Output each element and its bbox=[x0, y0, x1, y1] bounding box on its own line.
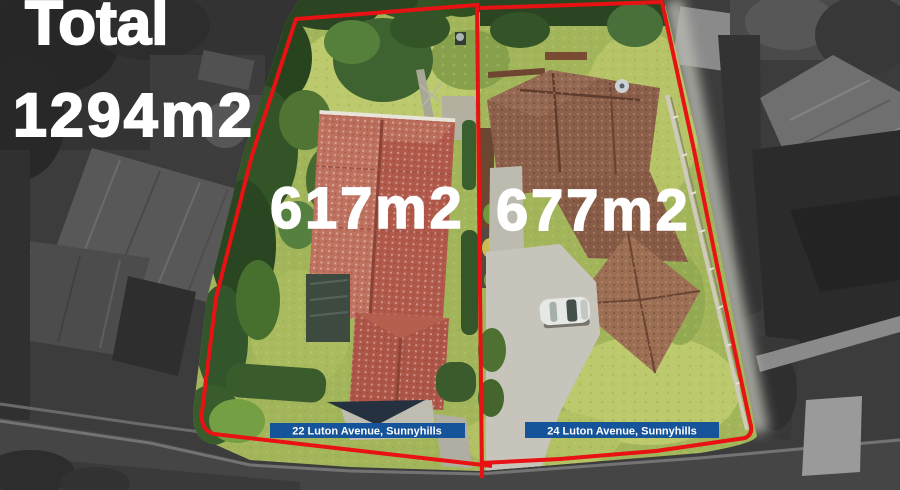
svg-text:677m2: 677m2 bbox=[496, 178, 691, 243]
svg-text:22 Luton Avenue, Sunnyhills: 22 Luton Avenue, Sunnyhills bbox=[292, 426, 442, 438]
svg-text:24 Luton Avenue, Sunnyhills: 24 Luton Avenue, Sunnyhills bbox=[547, 426, 697, 438]
svg-text:1294m2: 1294m2 bbox=[13, 81, 255, 149]
svg-text:Total: Total bbox=[25, 0, 169, 58]
svg-text:617m2: 617m2 bbox=[270, 176, 465, 241]
